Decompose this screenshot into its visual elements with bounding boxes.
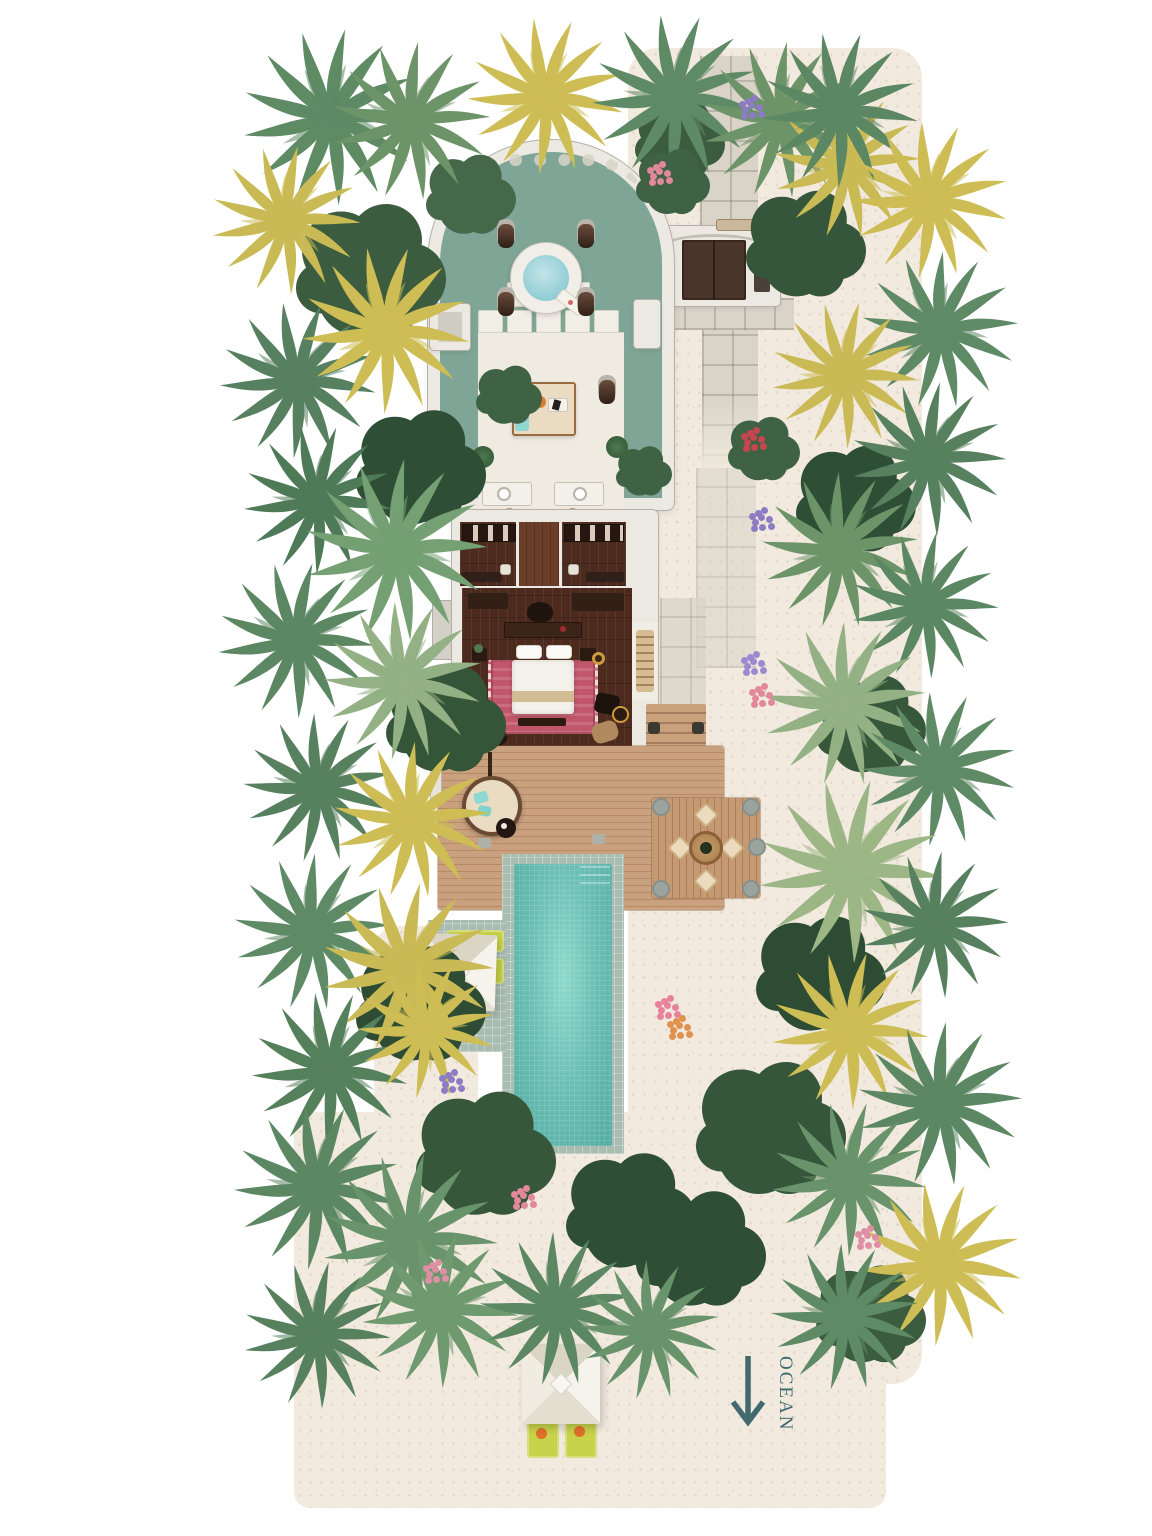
laundry-basket — [568, 564, 579, 575]
bath-pillar — [578, 292, 594, 316]
bed-pillow — [516, 645, 542, 659]
wardrobe — [564, 524, 624, 542]
flower-cluster — [750, 658, 757, 665]
paver-walkway — [660, 598, 706, 708]
closet-divider — [516, 522, 519, 586]
wall-wing — [634, 300, 660, 348]
shrub — [636, 146, 710, 220]
dresser — [572, 593, 624, 611]
flower-cluster — [864, 1232, 871, 1239]
laundry-basket — [500, 564, 511, 575]
bed-duvet — [512, 660, 574, 714]
deck-footing — [652, 798, 670, 816]
closet-divider — [559, 522, 562, 586]
flower-cluster — [664, 1002, 671, 1009]
gold-bowl — [592, 652, 605, 665]
closet-counter — [586, 572, 624, 582]
flower-cluster — [676, 1022, 683, 1029]
gate-door-seam — [713, 240, 715, 300]
step-pad — [592, 834, 605, 844]
writing-desk — [504, 622, 582, 638]
lounger-towel — [574, 1426, 585, 1437]
villa-site-plan: OCEAN — [0, 0, 1152, 1536]
flower-cluster — [520, 1192, 527, 1199]
palm-tree — [340, 944, 511, 1115]
shrub — [728, 414, 800, 486]
flower-petal — [568, 300, 573, 305]
deck-footing — [652, 880, 670, 898]
pool-steps — [580, 866, 610, 890]
flower-cluster — [750, 434, 757, 441]
table-centerpiece — [700, 842, 712, 854]
side-table-gold — [612, 706, 629, 723]
step-light — [692, 722, 704, 734]
luggage-rack — [636, 630, 654, 692]
ocean-label: OCEAN — [774, 1356, 796, 1431]
closet-hall-floor — [518, 522, 562, 586]
bed-bench — [518, 718, 566, 726]
desk-chair — [527, 602, 553, 622]
ocean-arrow-icon — [728, 1352, 768, 1436]
flower-cluster — [656, 168, 663, 175]
desk-vase — [560, 626, 566, 632]
bath-pillar — [599, 380, 615, 404]
flower-cluster — [758, 690, 765, 697]
flower-cluster — [432, 1266, 439, 1273]
bed-pillow — [546, 645, 572, 659]
vanity-sink — [573, 487, 587, 501]
bath-pillar — [578, 224, 594, 248]
flower-cluster — [448, 1076, 455, 1083]
bed-runner — [512, 691, 574, 702]
step-light — [648, 722, 660, 734]
shrub — [476, 336, 542, 456]
flower-cluster — [748, 102, 755, 109]
flower-cluster — [758, 514, 765, 521]
shrub — [616, 424, 672, 520]
bath-pillar — [498, 292, 514, 316]
lounger-towel — [536, 1428, 547, 1439]
